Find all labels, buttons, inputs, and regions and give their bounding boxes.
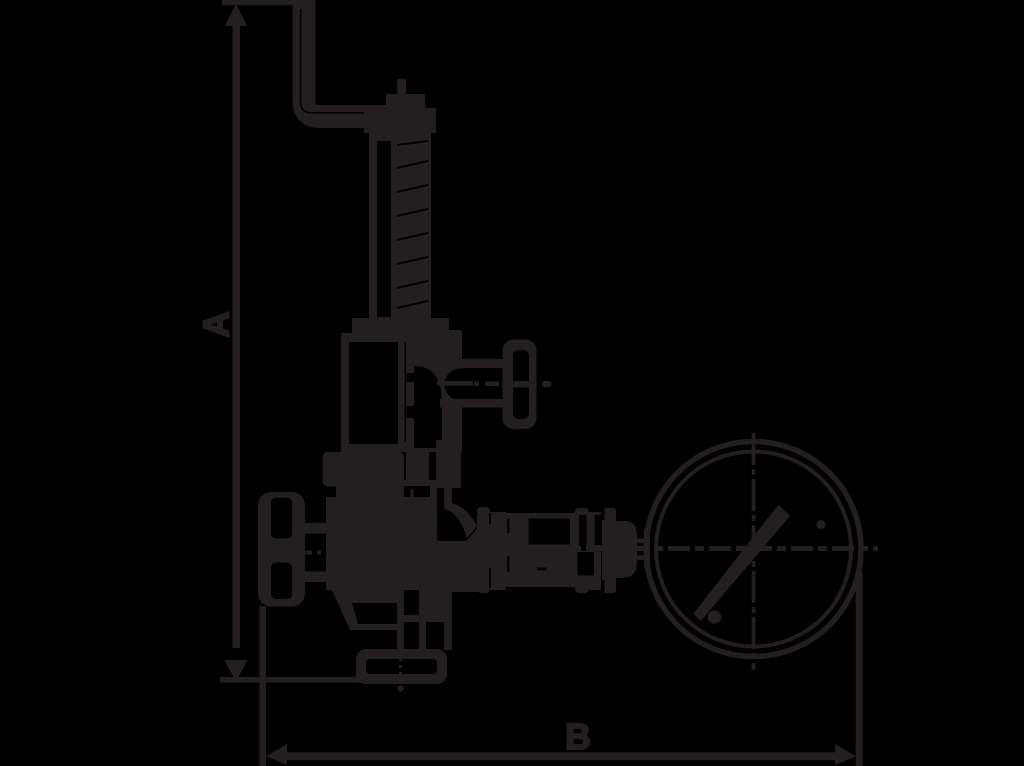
svg-text:A: A [196,312,237,338]
svg-text:B: B [565,716,591,757]
